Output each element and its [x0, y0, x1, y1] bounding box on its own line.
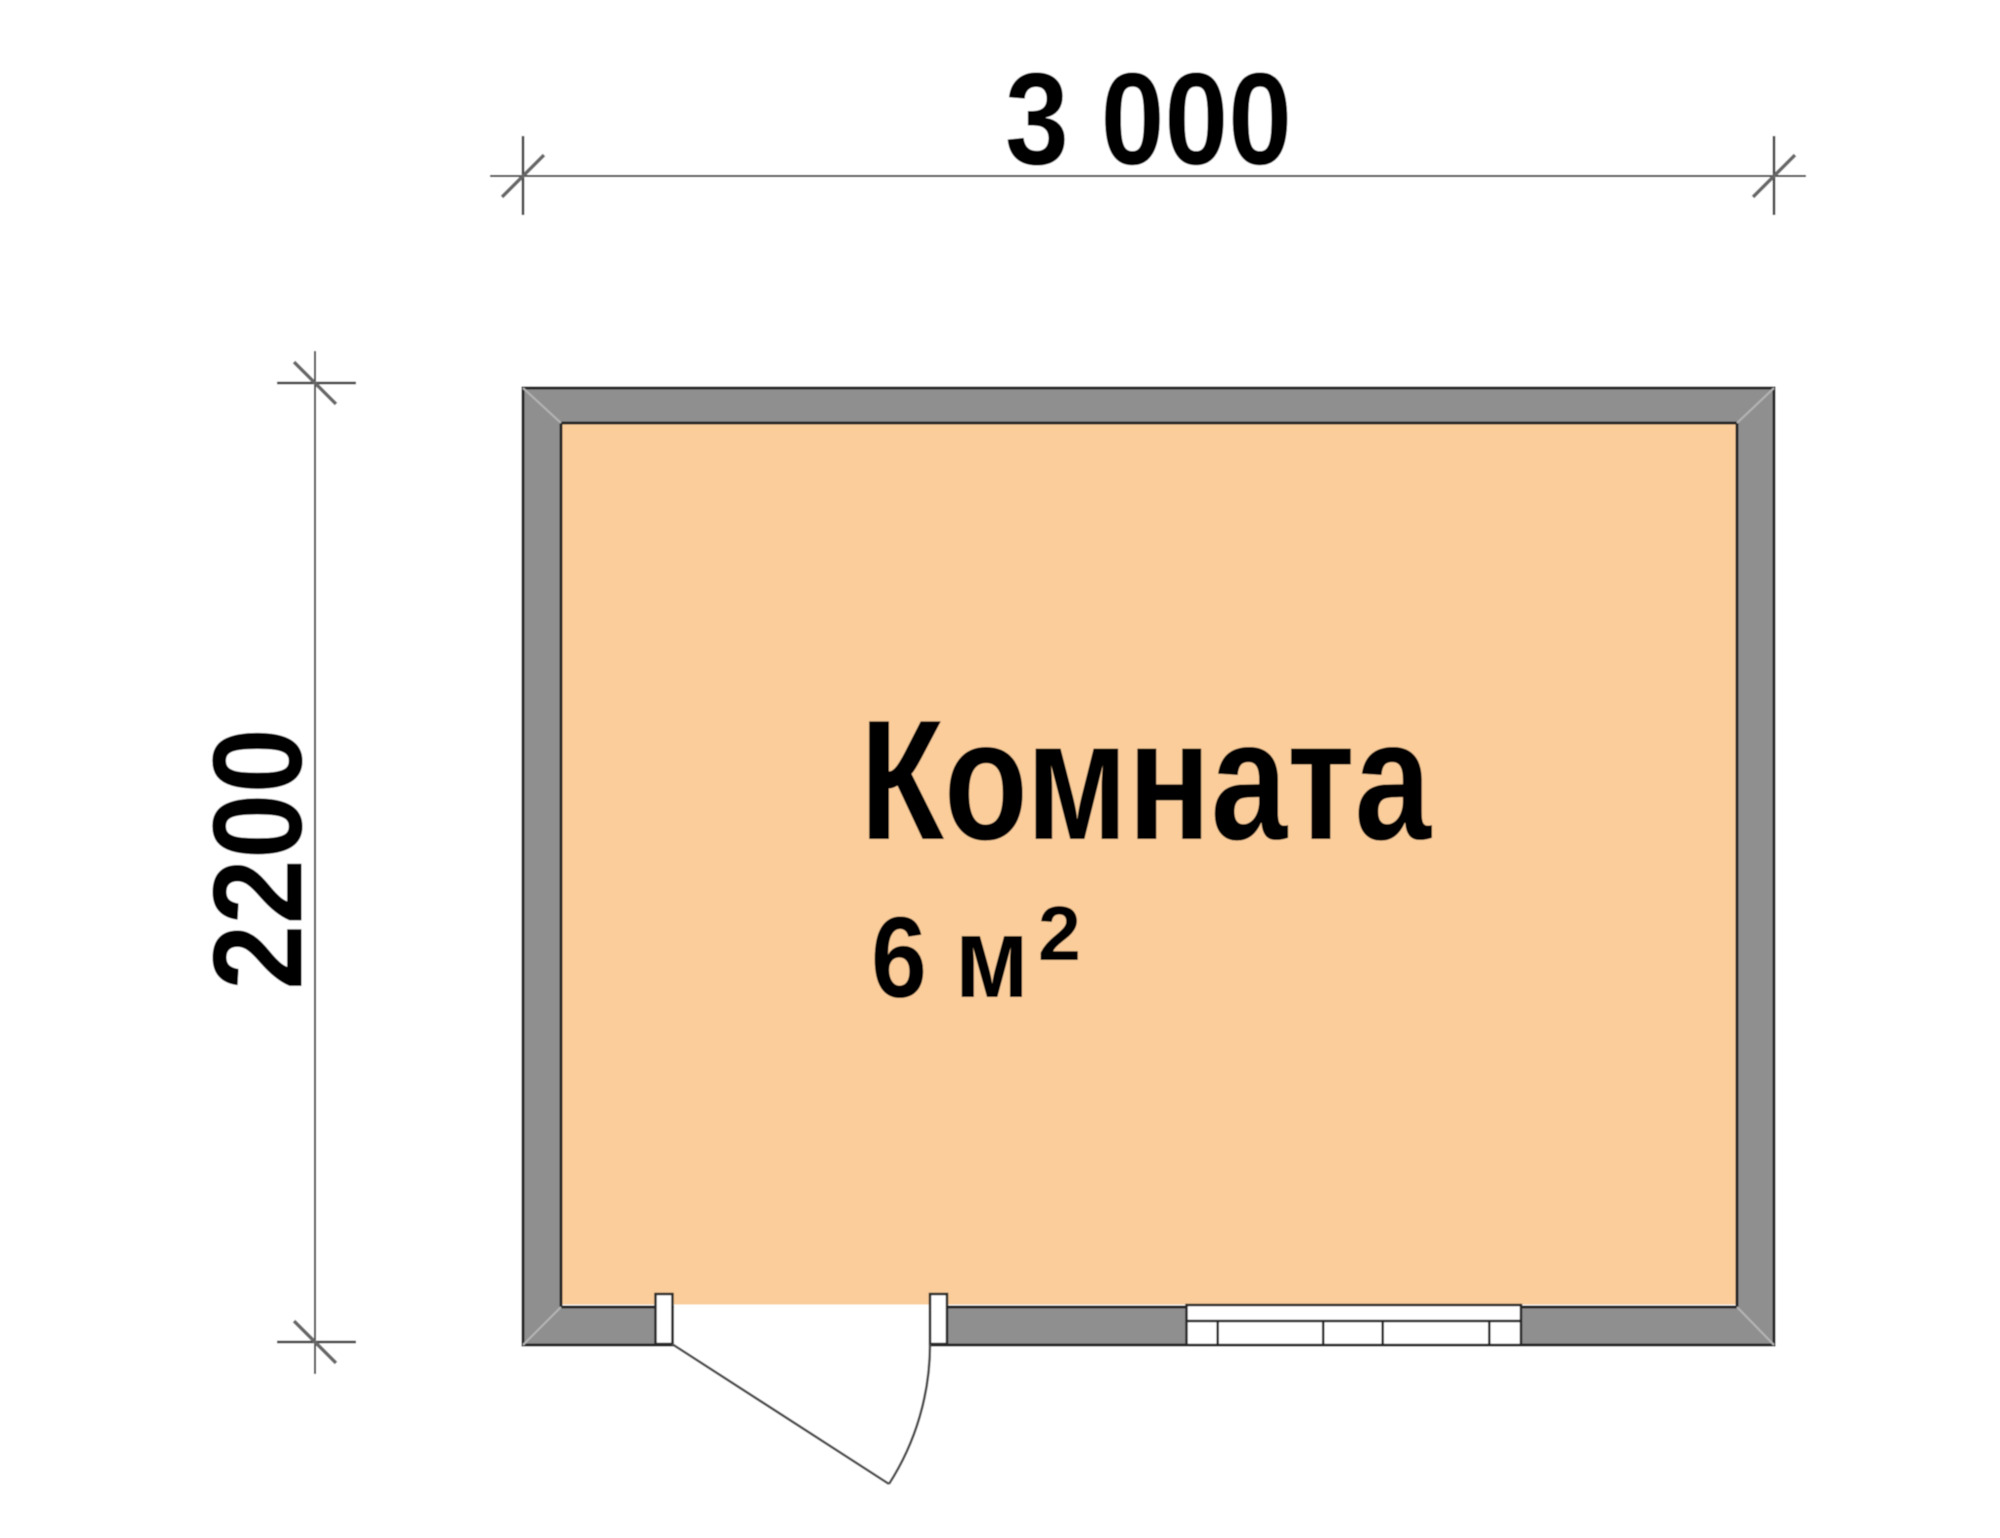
svg-text:2200: 2200: [187, 728, 329, 990]
svg-text:Комната: Комната: [860, 685, 1433, 876]
svg-text:3 000: 3 000: [1005, 45, 1292, 192]
svg-text:6 м: 6 м: [871, 894, 1029, 1022]
svg-text:2: 2: [1038, 891, 1081, 977]
